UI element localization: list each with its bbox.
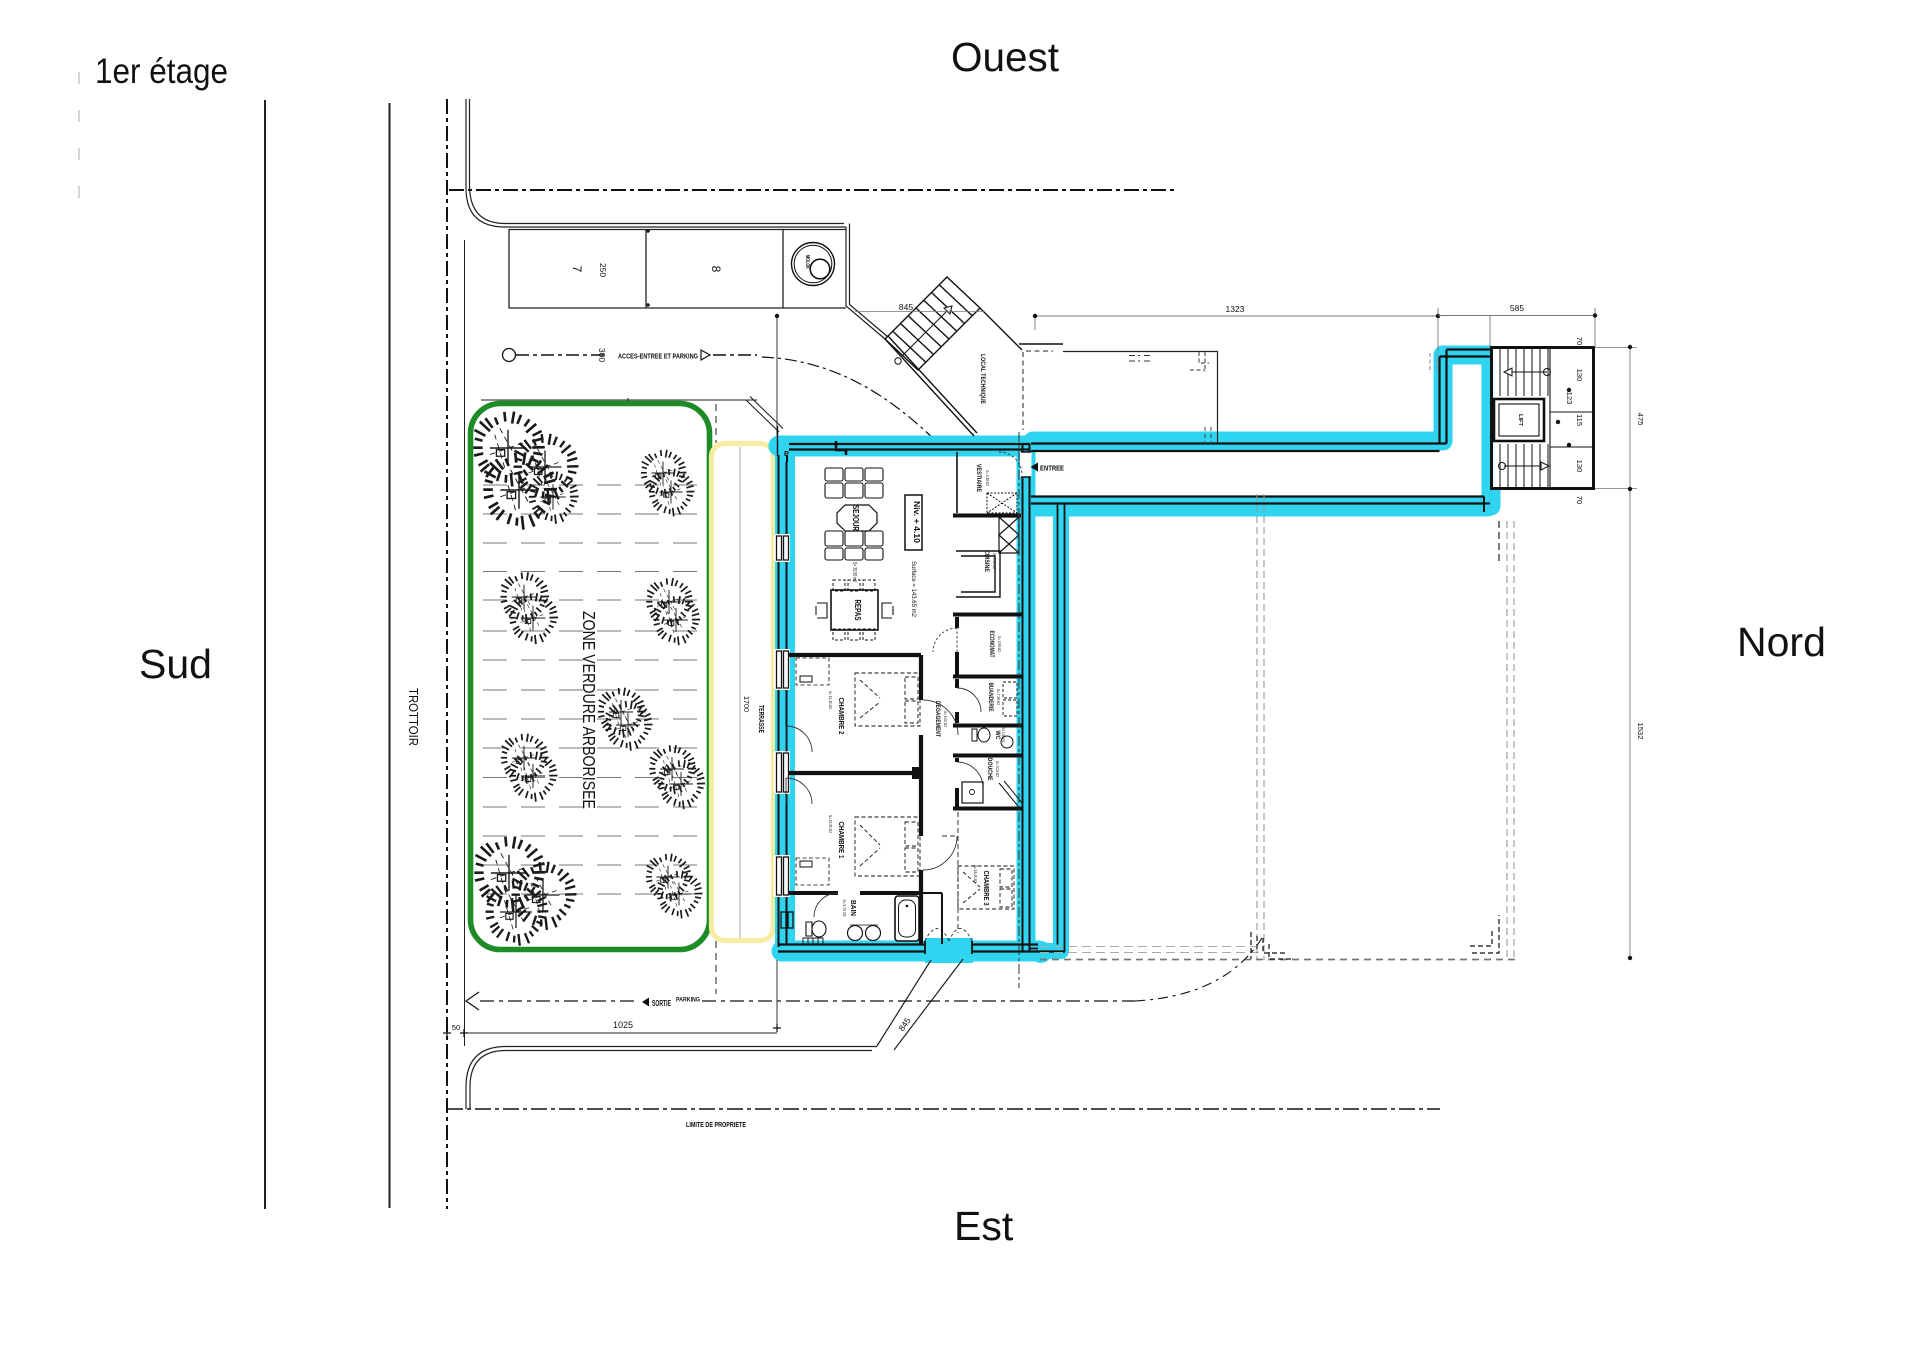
svg-text:S= 7.28 m2: S= 7.28 m2: [996, 689, 1001, 705]
svg-text:S= 4.99 m2: S= 4.99 m2: [997, 636, 1002, 652]
svg-text:S= 1.80 m2: S= 1.80 m2: [1001, 728, 1006, 743]
svg-text:S= 6.19 m2: S= 6.19 m2: [992, 553, 997, 569]
svg-text:845: 845: [899, 302, 913, 312]
svg-text:8: 8: [709, 266, 723, 273]
svg-text:LIMITE DE PROPRIETE: LIMITE DE PROPRIETE: [686, 1120, 746, 1129]
svg-text:123: 123: [1565, 392, 1574, 405]
svg-text:1er étage: 1er étage: [95, 52, 228, 91]
svg-text:50: 50: [452, 1023, 460, 1032]
svg-text:WC: WC: [994, 731, 1000, 741]
svg-text:250: 250: [598, 263, 608, 277]
svg-text:130: 130: [1575, 369, 1584, 382]
svg-text:SORTIE: SORTIE: [652, 999, 671, 1008]
svg-text:BUANDERIE: BUANDERIE: [987, 683, 994, 712]
svg-text:S= 4.38 m2: S= 4.38 m2: [985, 470, 990, 486]
svg-text:S= 6.00 m2: S= 6.00 m2: [943, 711, 948, 727]
svg-text:1700: 1700: [742, 696, 751, 712]
svg-text:Niv. + 4.10: Niv. + 4.10: [912, 501, 921, 544]
svg-text:CHAMBRE 2: CHAMBRE 2: [837, 698, 846, 735]
svg-text:1025: 1025: [613, 1020, 633, 1030]
svg-text:7: 7: [570, 266, 584, 273]
svg-text:Nord: Nord: [1737, 619, 1826, 665]
svg-text:TERRASSE: TERRASSE: [757, 705, 766, 733]
svg-text:BAIN: BAIN: [849, 900, 858, 916]
svg-text:130: 130: [1575, 460, 1584, 473]
svg-text:S= 3.23 m2: S= 3.23 m2: [995, 761, 1000, 777]
svg-text:LOCAL TECHNIQUE: LOCAL TECHNIQUE: [979, 354, 986, 404]
svg-text:S= 16.45 m2: S= 16.45 m2: [972, 865, 978, 883]
svg-text:SEJOUR: SEJOUR: [851, 505, 860, 531]
svg-text:Ouest: Ouest: [951, 34, 1059, 80]
svg-text:70: 70: [1575, 496, 1584, 504]
svg-text:Sud: Sud: [139, 641, 212, 687]
svg-text:CHAMBRE 1: CHAMBRE 1: [837, 822, 846, 859]
svg-text:1323: 1323: [1226, 304, 1245, 314]
svg-text:CUISINE: CUISINE: [983, 550, 990, 572]
svg-text:S= 15.95 m2: S= 15.95 m2: [827, 815, 833, 833]
svg-text:S= 5.70 m2: S= 5.70 m2: [842, 900, 847, 917]
svg-text:PARKING: PARKING: [676, 997, 700, 1004]
svg-text:70: 70: [1575, 337, 1584, 345]
svg-text:DOUCHE: DOUCHE: [986, 758, 993, 781]
svg-text:REPAS: REPAS: [853, 600, 862, 622]
svg-text:475: 475: [1636, 413, 1645, 426]
svg-text:ECONOMAT: ECONOMAT: [988, 631, 995, 658]
svg-text:DEGAGEMENT: DEGAGEMENT: [934, 701, 941, 737]
svg-text:1532: 1532: [1636, 723, 1645, 740]
svg-text:VESTIAIRE: VESTIAIRE: [975, 464, 982, 492]
svg-text:300: 300: [597, 348, 607, 362]
svg-text:ACCES-ENTREE ET PARKING: ACCES-ENTREE ET PARKING: [618, 354, 698, 361]
svg-text:Surface = 143.65 m2: Surface = 143.65 m2: [910, 561, 917, 617]
svg-text:S= 35.90 m2: S= 35.90 m2: [851, 562, 857, 582]
svg-text:115: 115: [1575, 414, 1584, 426]
svg-text:S= 14.15 m2: S= 14.15 m2: [827, 691, 833, 709]
svg-text:LIFT: LIFT: [1517, 414, 1523, 427]
svg-text:TROTTOIR: TROTTOIR: [406, 688, 421, 746]
svg-text:585: 585: [1510, 303, 1524, 313]
svg-text:CHAMBRE 3: CHAMBRE 3: [982, 871, 991, 906]
svg-text:P: P: [784, 449, 789, 458]
svg-text:ENTREE: ENTREE: [1040, 464, 1064, 473]
svg-text:ZONE VERDURE ARBORISEE: ZONE VERDURE ARBORISEE: [579, 611, 599, 809]
svg-text:Est: Est: [954, 1203, 1014, 1249]
svg-text:MOLOK: MOLOK: [804, 255, 810, 269]
